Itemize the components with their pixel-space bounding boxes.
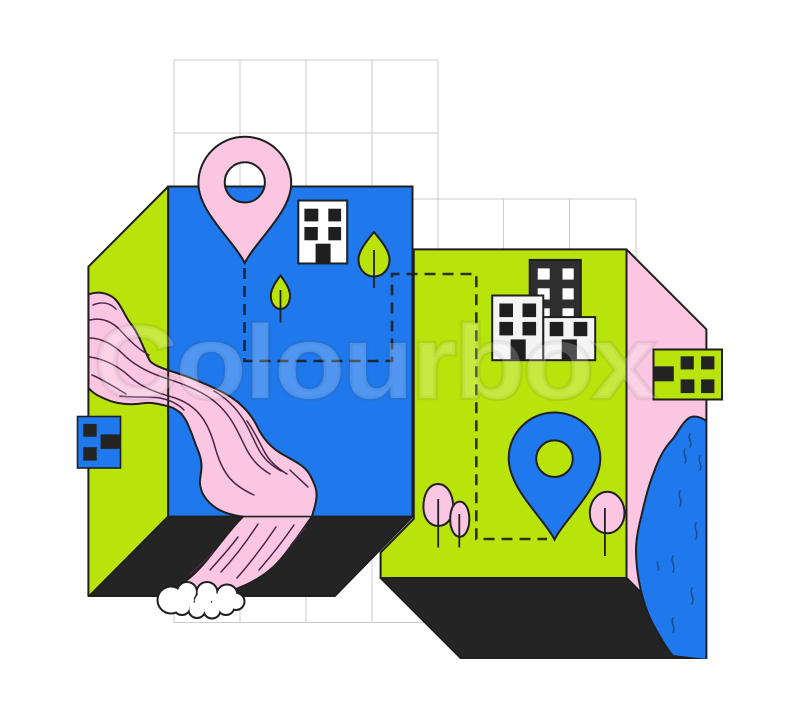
svg-text:Colourbox: Colourbox: [94, 305, 656, 421]
